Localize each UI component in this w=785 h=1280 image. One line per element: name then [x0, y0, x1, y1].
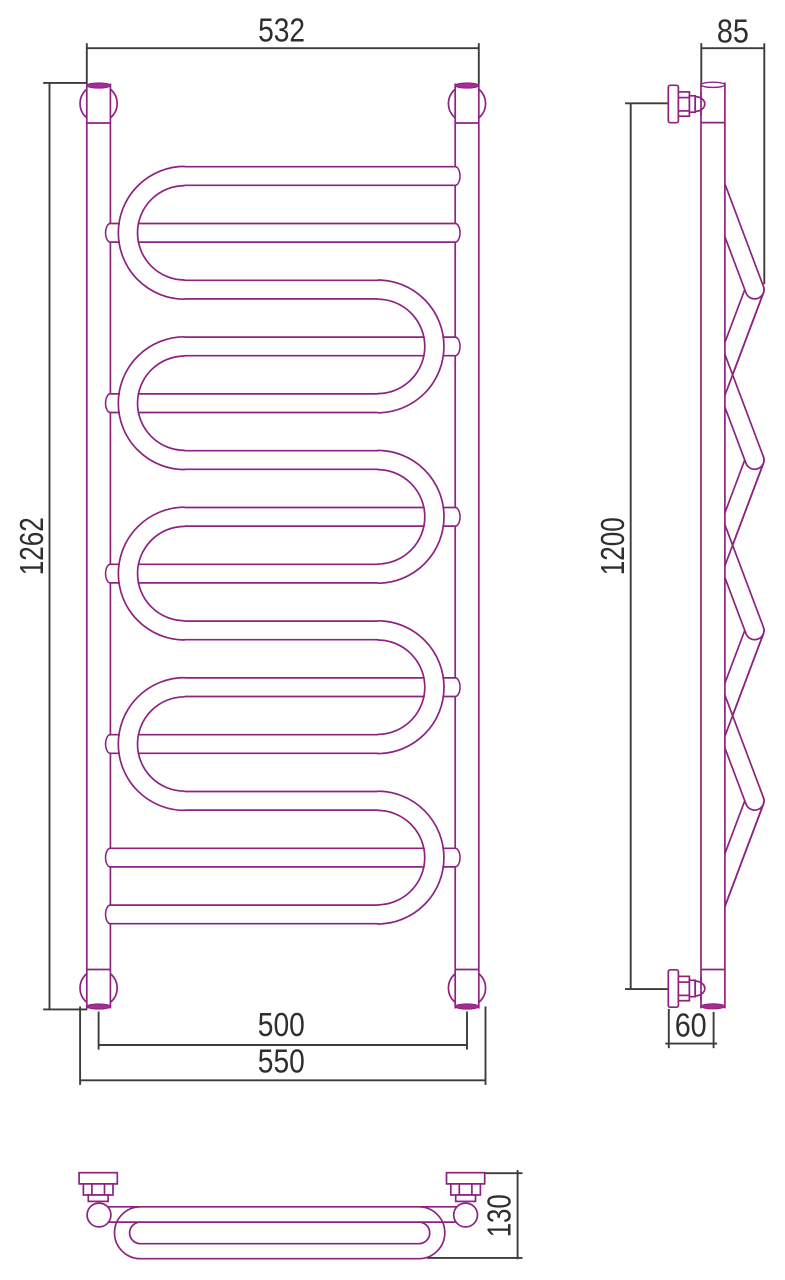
svg-text:60: 60: [675, 1007, 707, 1044]
svg-text:532: 532: [258, 12, 305, 49]
svg-text:85: 85: [717, 13, 749, 50]
svg-text:1262: 1262: [13, 517, 50, 575]
svg-text:550: 550: [258, 1042, 305, 1079]
svg-text:130: 130: [480, 1194, 517, 1237]
svg-text:500: 500: [258, 1006, 305, 1043]
svg-text:1200: 1200: [594, 517, 631, 575]
